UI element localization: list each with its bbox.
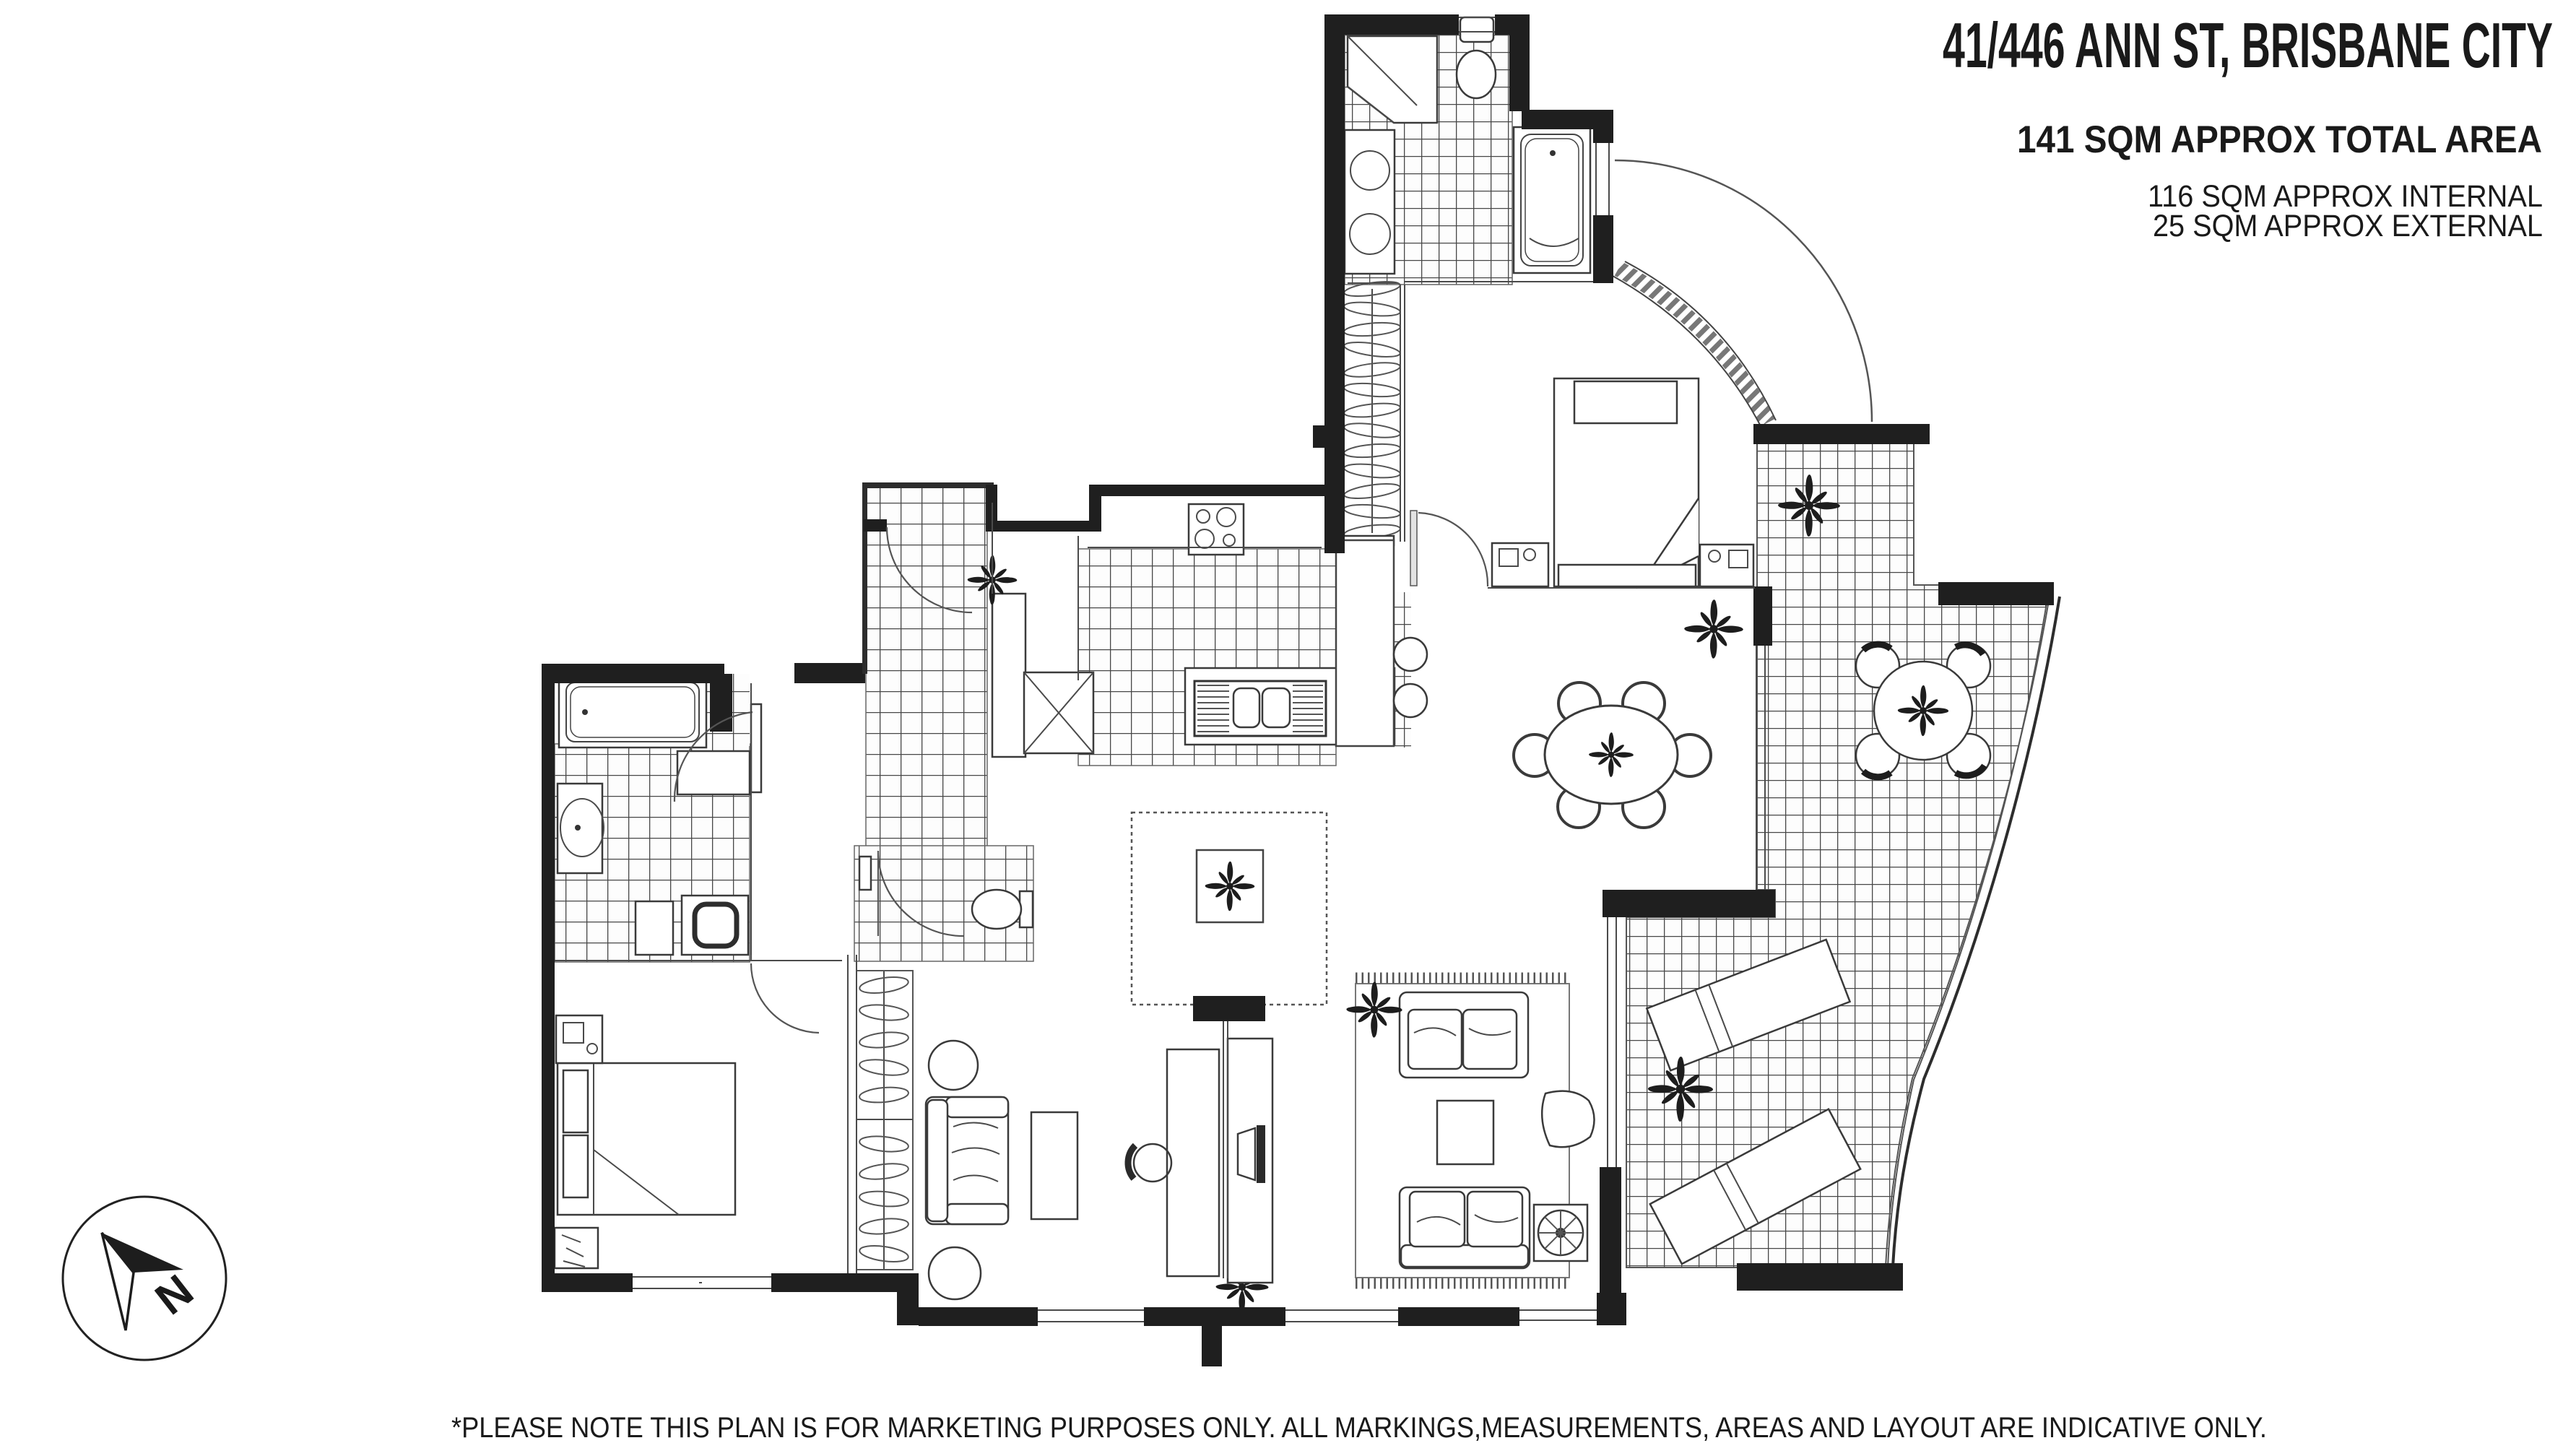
svg-text:41/446 ANN ST, BRISBANE CITY: 41/446 ANN ST, BRISBANE CITY xyxy=(1943,9,2553,81)
svg-text:25 SQM APPROX EXTERNAL: 25 SQM APPROX EXTERNAL xyxy=(2153,209,2543,243)
svg-text:*PLEASE NOTE THIS PLAN IS FOR: *PLEASE NOTE THIS PLAN IS FOR MARKETING … xyxy=(451,1412,2267,1444)
svg-text:141 SQM APPROX TOTAL AREA: 141 SQM APPROX TOTAL AREA xyxy=(2017,118,2542,161)
